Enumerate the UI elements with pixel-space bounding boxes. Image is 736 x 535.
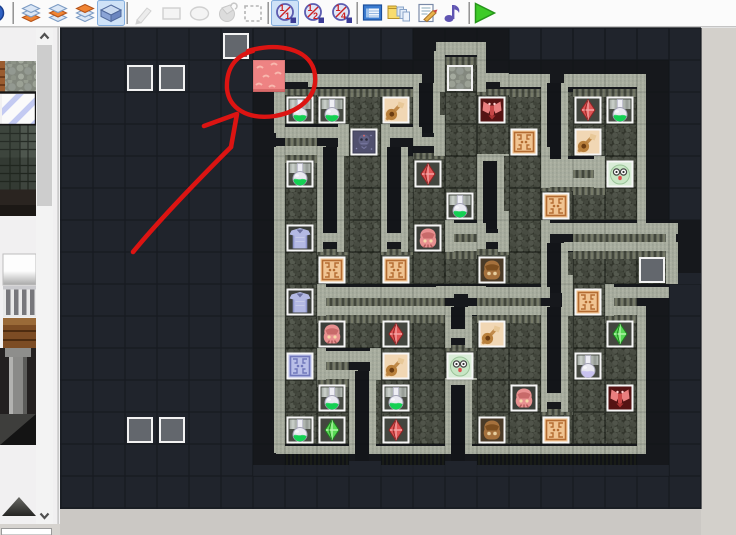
- svg-text:1: 1: [336, 3, 341, 13]
- svg-text:4: 4: [341, 11, 346, 21]
- svg-text:1: 1: [308, 3, 313, 13]
- svg-text:1: 1: [285, 11, 290, 21]
- svg-text:1: 1: [280, 3, 285, 13]
- svg-text:2: 2: [313, 11, 318, 21]
